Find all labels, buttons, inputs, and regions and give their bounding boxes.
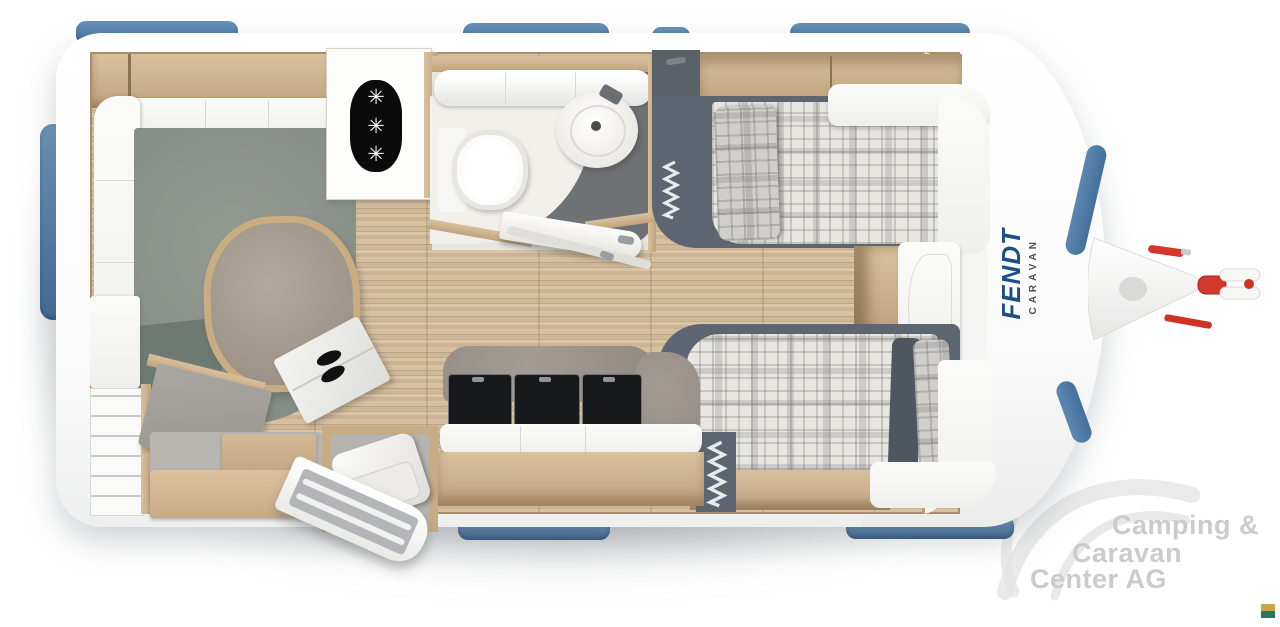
toilet-lid bbox=[463, 139, 517, 201]
fridge bbox=[90, 388, 144, 516]
concertina-icon-bed2 bbox=[702, 440, 732, 508]
tall-cabinet bbox=[90, 296, 140, 388]
sofa-base bbox=[438, 452, 704, 506]
fendt-caravan-label: CARAVAN bbox=[1028, 238, 1039, 315]
bed1-pillow bbox=[714, 105, 781, 241]
coupling-jaw-top bbox=[1220, 269, 1260, 281]
sofa-front-seam bbox=[585, 426, 586, 454]
sofa-seat bbox=[448, 374, 512, 430]
burner-icon: ✳ bbox=[367, 144, 385, 165]
seat-latch bbox=[603, 377, 615, 382]
fendt-logo: FENDT bbox=[996, 228, 1027, 320]
kitchen-cooktop: ✳ ✳ ✳ bbox=[350, 80, 402, 172]
breakaway-cable bbox=[1164, 314, 1212, 329]
concertina-icon-bed1 bbox=[655, 160, 687, 220]
caravan-floorplan-scene: Camping & Caravan Center AG ✳ ✳ ✳ bbox=[0, 0, 1280, 627]
sofa-seat bbox=[582, 374, 642, 430]
corner-mark bbox=[1261, 604, 1275, 618]
burner-icon: ✳ bbox=[367, 116, 385, 137]
hitch-assembly bbox=[1088, 232, 1273, 347]
between-beds-shelf bbox=[854, 246, 902, 332]
jockey-handle bbox=[1148, 245, 1185, 258]
coupling-jaw-bottom bbox=[1220, 287, 1260, 299]
corner-mark-top bbox=[1261, 604, 1275, 611]
corner-mark-bottom bbox=[1261, 611, 1275, 618]
locker-seam bbox=[505, 72, 506, 104]
seat-latch bbox=[472, 377, 484, 382]
sink-basin bbox=[570, 105, 626, 157]
bed1-foot-wrap bbox=[938, 96, 990, 254]
sofa-seat bbox=[514, 374, 580, 430]
bench-seam bbox=[96, 180, 138, 181]
drawbar-hole bbox=[1119, 277, 1147, 301]
sink-drain bbox=[591, 121, 601, 131]
burner-icon: ✳ bbox=[367, 87, 385, 108]
seat-latch bbox=[539, 377, 551, 382]
bench-seam bbox=[96, 262, 138, 263]
bed2-bottom-wrap bbox=[870, 462, 996, 508]
sofa-front-seam bbox=[520, 426, 521, 454]
coupling-red-dot bbox=[1244, 279, 1254, 289]
